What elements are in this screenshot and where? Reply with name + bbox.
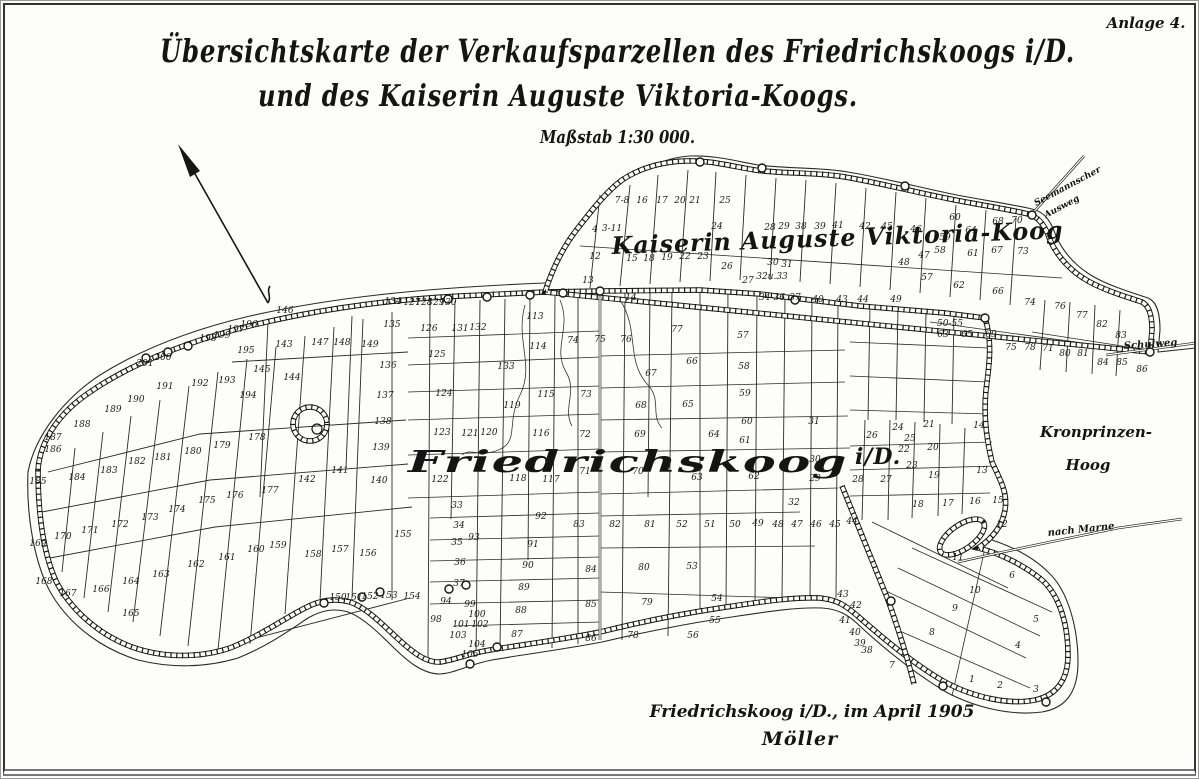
parcel-number: 162 <box>187 560 204 570</box>
parcel-number: 195 <box>237 346 254 356</box>
parcel-number: 105 <box>461 650 478 660</box>
parcel-number: 48 <box>897 258 910 268</box>
parcel-number: 61 <box>739 436 750 446</box>
parcel-number: 167 <box>59 589 76 599</box>
parcel-number: 92 <box>535 512 547 522</box>
parcel-number: 67 <box>645 369 657 379</box>
parcel-number: 59 <box>939 233 951 243</box>
region-label-fk-suffix: i/D. <box>855 444 901 470</box>
parcel-number: 7 <box>889 661 895 671</box>
parcel-number: 138 <box>374 417 391 427</box>
parcel-number: 154 <box>403 592 420 602</box>
parcel-number: 133 <box>497 362 514 372</box>
parcel-number: 99 <box>464 600 476 610</box>
parcel-number: 64 <box>965 226 977 236</box>
parcel-number: 145 <box>253 365 270 375</box>
parcel-number: 47 <box>917 251 930 261</box>
parcel-number: 71 <box>1042 344 1053 354</box>
parcel-number: 50 <box>729 520 741 530</box>
parcel-number: 63 <box>691 473 703 483</box>
parcel-number: 118 <box>509 474 526 484</box>
parcel-number: 27 <box>741 276 754 286</box>
parcel-number: 103 <box>449 631 466 641</box>
parcel-number: 130 <box>439 298 456 308</box>
parcel-number: 58 <box>934 246 946 256</box>
parcel-number: 52 <box>676 520 688 530</box>
parcel-number: 53 <box>686 562 698 572</box>
parcel-number: 44 <box>845 517 858 527</box>
parcel-number: 43 <box>836 590 849 600</box>
region-label-friedrichskoog: Friedrichskoog <box>406 445 848 480</box>
parcel-number: 27 <box>879 475 892 485</box>
parcel-number: 28 <box>851 475 864 485</box>
parcel-number: 18 <box>643 254 655 264</box>
parcel-number: 41 <box>838 616 850 626</box>
parcel-number: 125 <box>428 350 445 360</box>
parcel-number: 4 <box>1014 641 1021 651</box>
parcel-number: 80 <box>1059 349 1071 359</box>
parcel-number: 82 <box>609 520 621 530</box>
parcel-number: 19 <box>928 471 940 481</box>
parcel-number: 17 <box>656 196 668 206</box>
parcel-number: 73 <box>1017 247 1029 257</box>
parcel-number: 46 <box>809 520 822 530</box>
parcel-number: 84 <box>585 565 597 575</box>
parcel-number: 34 <box>453 521 465 531</box>
parcel-number: 137 <box>376 391 393 401</box>
parcel-number: 192 <box>191 379 208 389</box>
map-title-line2: und des Kaiserin Auguste Viktoria-Koogs. <box>258 79 858 114</box>
parcel-number: 36 <box>454 558 466 568</box>
parcel-number: 12 <box>996 520 1008 530</box>
parcel-number: 42 <box>849 601 862 611</box>
parcel-number: 14 <box>625 293 637 303</box>
parcel-number: 30 <box>767 258 779 268</box>
parcel-number: 31 <box>781 260 792 270</box>
parcel-number: 191 <box>156 382 173 392</box>
parcel-number: 77 <box>1076 311 1088 321</box>
parcel-number: 58 <box>738 362 750 372</box>
parcel-number: 168 <box>35 577 52 587</box>
parcel-number: 7-8 <box>615 196 630 206</box>
parcel-number: 147 <box>311 338 328 348</box>
scale-label: Maßstab 1:30 000. <box>539 127 695 148</box>
parcel-number: 81 <box>1077 349 1088 359</box>
parcel-number: 65 <box>961 330 973 340</box>
parcel-number: 114 <box>529 342 546 352</box>
parcel-number: 82 <box>1096 320 1108 330</box>
parcel-number: 21 <box>688 196 700 206</box>
parcel-number: 135 <box>383 320 400 330</box>
parcel-number: 67 <box>991 246 1003 256</box>
parcel-number: 59 <box>739 389 751 399</box>
parcel-number: 119 <box>503 401 520 411</box>
parcel-number: 185 <box>29 477 46 487</box>
parcel-number: 49 <box>889 295 902 305</box>
parcel-number: 98 <box>430 615 442 625</box>
parcel-number: 126 <box>420 324 437 334</box>
parcel-number: 3 <box>1033 685 1039 695</box>
parcel-number: 74 <box>1024 298 1036 308</box>
parcel-number: 72 <box>579 430 591 440</box>
parcel-number: 30 <box>809 455 821 465</box>
parcel-number: 17 <box>942 499 954 509</box>
parcel-number: 170 <box>54 532 71 542</box>
parcel-number: 104 <box>468 640 485 650</box>
parcel-number: 156 <box>359 549 376 559</box>
footer-place-date: Friedrichskoog i/D., im April 1905 <box>649 702 975 722</box>
parcel-number: 48 <box>771 520 784 530</box>
parcel-number: 76 <box>1054 302 1066 312</box>
parcel-number: 120 <box>480 428 497 438</box>
parcel-number: 90 <box>522 561 534 571</box>
parcel-number: 175 <box>198 496 215 506</box>
parcel-number: 57 <box>737 331 749 341</box>
parcel-number: 187 <box>44 433 61 443</box>
parcel-number: 182 <box>128 457 145 467</box>
parcel-number: 83 <box>573 520 585 530</box>
parcel-number: 26 <box>720 262 733 272</box>
parcel-number: 69 <box>985 330 997 340</box>
parcel-number: 39 <box>814 222 826 232</box>
parcel-number: 40 <box>811 295 824 305</box>
parcel-number: 177 <box>261 486 278 496</box>
parcel-number: 71 <box>579 467 590 477</box>
parcel-number: 37 <box>453 579 465 589</box>
parcel-number: 21 <box>922 420 934 430</box>
parcel-number: 39 <box>854 639 866 649</box>
parcel-number: 41 <box>831 221 843 231</box>
parcel-number: 89 <box>518 583 530 593</box>
parcel-number: 3-11 <box>602 224 622 234</box>
parcel-number: 183 <box>100 466 117 476</box>
parcel-number: 19 <box>661 253 673 263</box>
parcel-number: 93 <box>468 533 480 543</box>
parcel-number: 75 <box>594 335 606 345</box>
parcel-number: 9 <box>952 604 958 614</box>
parcel-number: 180 <box>184 447 201 457</box>
parcel-number: 181 <box>154 453 171 463</box>
parcel-number: 66 <box>686 357 698 367</box>
parcel-number: 31 <box>808 417 819 427</box>
parcel-number: 155 <box>394 530 411 540</box>
parcel-number: 77 <box>671 325 683 335</box>
parcel-number: 15 <box>626 254 638 264</box>
parcel-number: 37 <box>789 293 801 303</box>
parcel-number: 4 <box>591 225 598 235</box>
parcel-number: 60 <box>741 417 753 427</box>
parcel-number: 85 <box>585 600 597 610</box>
parcel-number: 80 <box>638 563 650 573</box>
parcel-number: 69 <box>634 430 646 440</box>
parcel-number: 140 <box>370 476 387 486</box>
parcel-number: 142 <box>298 475 315 485</box>
parcel-number: 149 <box>361 340 378 350</box>
parcel-number: 116 <box>532 429 549 439</box>
parcel-number: 45 <box>880 222 893 232</box>
parcel-number: 160 <box>247 545 264 555</box>
parcel-number: 166 <box>92 585 109 595</box>
parcel-number: 40 <box>848 628 861 638</box>
parcel-number: 200 <box>153 353 171 363</box>
parcel-number: 66 <box>992 287 1004 297</box>
parcel-number: 49 <box>751 519 764 529</box>
parcel-number: 62 <box>748 472 760 482</box>
parcel-number: 13 <box>976 466 988 476</box>
parcel-number: 29 <box>777 222 790 232</box>
parcel-number: 144 <box>283 373 300 383</box>
parcel-number: 51 <box>704 520 715 530</box>
parcel-number: 20 <box>673 196 686 206</box>
parcel-number: 1 <box>969 675 975 685</box>
parcel-number: 178 <box>248 433 265 443</box>
parcel-number: 22 <box>897 445 910 455</box>
parcel-number: 136 <box>379 361 396 371</box>
parcel-number: 25 <box>718 196 731 206</box>
parcel-number: 88 <box>515 606 527 616</box>
parcel-number: 38 <box>795 222 807 232</box>
parcel-number: 16 <box>969 497 981 507</box>
map-title-line1: Übersichtskarte der Verkaufsparzellen de… <box>160 31 1075 70</box>
parcel-number: 6 <box>1009 571 1015 581</box>
parcel-number: 131 <box>451 324 468 334</box>
parcel-number: 164 <box>122 577 139 587</box>
parcel-number: 5 <box>1033 615 1039 625</box>
parcel-number: 151 <box>345 593 362 603</box>
parcel-number: 169 <box>29 539 46 549</box>
footer-signature: Möller <box>761 728 839 750</box>
parcel-number: 141 <box>331 466 348 476</box>
parcel-number: 102 <box>471 620 488 630</box>
parcel-number: 78 <box>627 631 639 641</box>
parcel-number: 50-55 <box>937 319 963 329</box>
parcel-number: 158 <box>304 550 321 560</box>
parcel-number: 25 <box>903 434 916 444</box>
region-label-kronprinzen-2: Hoog <box>1065 456 1111 474</box>
parcel-number: 33 <box>451 501 463 511</box>
parcel-number: 76 <box>620 335 632 345</box>
parcel-number: 44 <box>856 295 869 305</box>
parcel-number: 85 <box>1116 358 1128 368</box>
parcel-number: 143 <box>275 340 292 350</box>
parcel-number: 83 <box>1115 331 1127 341</box>
parcel-number: 23 <box>905 461 918 471</box>
parcel-number: 173 <box>141 513 158 523</box>
annex-annotation: Anlage 4. <box>1105 14 1186 32</box>
parcel-number: 34-36 <box>759 293 785 303</box>
parcel-number: 74 <box>567 336 579 346</box>
parcel-number: 122 <box>431 475 448 485</box>
parcel-number: 161 <box>218 553 235 563</box>
parcel-number: 29 <box>808 474 821 484</box>
region-label-kronprinzen-1: Kronprinzen- <box>1039 423 1152 441</box>
parcel-number: 46 <box>909 225 922 235</box>
road-label-schulweg: Schulweg <box>1123 337 1177 352</box>
parcel-number: 32 <box>788 498 800 508</box>
parcel-number: 70 <box>632 467 644 477</box>
parcel-number: 16 <box>636 196 648 206</box>
parcel-number: 18 <box>912 500 924 510</box>
parcel-number: 117 <box>542 475 559 485</box>
parcel-number: 75 <box>1005 343 1017 353</box>
parcel-number: 65 <box>682 400 694 410</box>
parcel-number: 73 <box>580 390 592 400</box>
parcel-number: 148 <box>333 338 350 348</box>
parcel-number: 54 <box>711 594 723 604</box>
parcel-number: 57 <box>921 273 933 283</box>
parcel-number: 15 <box>992 496 1004 506</box>
parcel-number: 24 <box>710 222 723 232</box>
parcel-number: 193 <box>218 376 235 386</box>
parcel-number: 56 <box>687 631 699 641</box>
parcel-number: 68 <box>635 401 647 411</box>
parcel-number: 14 <box>973 421 985 431</box>
parcel-number: 86 <box>585 634 597 644</box>
parcel-number: 70 <box>1011 216 1023 226</box>
parcel-number: 10 <box>969 586 981 596</box>
parcel-number: 24 <box>891 423 904 433</box>
map-sheet: Übersichtskarte der Verkaufsparzellen de… <box>0 0 1199 779</box>
parcel-number: 134 <box>384 297 401 307</box>
parcel-number: 79 <box>641 598 653 608</box>
parcel-number: 163 <box>152 570 169 580</box>
parcel-number: 87 <box>511 630 523 640</box>
parcel-number: 22 <box>678 252 691 262</box>
parcel-number: 13 <box>582 276 594 286</box>
parcel-number: 124 <box>435 389 452 399</box>
parcel-number: 171 <box>81 526 98 536</box>
parcel-number: 199 <box>213 331 230 341</box>
parcel-number: 64 <box>708 430 720 440</box>
parcel-number: 28 <box>763 223 776 233</box>
parcel-number: 194 <box>239 391 256 401</box>
parcel-number: 86 <box>1136 365 1148 375</box>
parcel-number: 60 <box>949 213 961 223</box>
parcel-number: 62 <box>953 281 965 291</box>
parcel-number: 26 <box>865 431 878 441</box>
parcel-number: 100 <box>468 610 485 620</box>
parcel-number: 94 <box>440 597 452 607</box>
parcel-number: 101 <box>452 620 469 630</box>
parcel-number: 78 <box>1024 343 1036 353</box>
parcel-number: 184 <box>68 473 85 483</box>
parcel-number: 32u.33 <box>756 272 788 282</box>
parcel-number: 150 <box>329 593 346 603</box>
parcel-number: 201 <box>135 359 153 369</box>
parcel-number: 165 <box>122 609 139 619</box>
parcel-number: 159 <box>269 541 286 551</box>
parcel-number: 190 <box>127 395 144 405</box>
parcel-number: 153 <box>380 591 397 601</box>
parcel-number: 11 <box>952 553 963 563</box>
parcel-number: 55 <box>709 616 721 626</box>
parcel-number: 172 <box>111 520 128 530</box>
parcel-number: 35 <box>451 538 463 548</box>
map-canvas: Übersichtskarte der Verkaufsparzellen de… <box>0 0 1199 779</box>
north-arrow <box>178 144 270 303</box>
parcel-number: 123 <box>433 428 450 438</box>
parcel-number: 8 <box>929 628 935 638</box>
parcel-number: 146 <box>276 306 293 316</box>
parcel-number: 23 <box>696 252 709 262</box>
parcel-number: 61 <box>967 249 978 259</box>
parcel-number: 176 <box>226 491 243 501</box>
parcel-number: 139 <box>372 443 389 453</box>
parcel-number: 121 <box>461 429 478 439</box>
parcel-number: 91 <box>527 540 538 550</box>
parcel-number: 2 <box>996 681 1003 691</box>
parcel-number: 84 <box>1097 358 1109 368</box>
parcel-number: 115 <box>537 390 554 400</box>
parcel-number: 174 <box>168 505 185 515</box>
parcel-number: 113 <box>526 312 543 322</box>
parcel-number: 179 <box>213 441 230 451</box>
parcel-number: 186 <box>44 445 61 455</box>
parcel-number: 189 <box>104 405 121 415</box>
parcel-number: 45 <box>828 520 841 530</box>
parcel-number: 68 <box>992 217 1004 227</box>
parcel-number: 188 <box>73 420 90 430</box>
parcel-number: 43 <box>835 295 848 305</box>
parcel-number: 20 <box>926 443 939 453</box>
parcel-number: 152 <box>361 592 378 602</box>
parcel-number: 132 <box>469 323 486 333</box>
parcel-number: 157 <box>331 545 348 555</box>
parcel-number: 42 <box>858 222 871 232</box>
parcel-number: 47 <box>790 520 803 530</box>
parcel-number: 63 <box>937 330 949 340</box>
parcel-number: 12 <box>589 252 601 262</box>
parcel-number: 81 <box>644 520 655 530</box>
